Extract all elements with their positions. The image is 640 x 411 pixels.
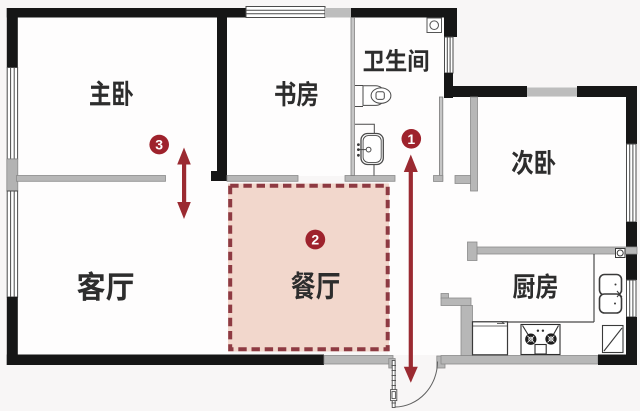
svg-text:1: 1 (407, 131, 415, 147)
svg-text:2: 2 (311, 232, 319, 248)
svg-text:3: 3 (155, 137, 163, 153)
